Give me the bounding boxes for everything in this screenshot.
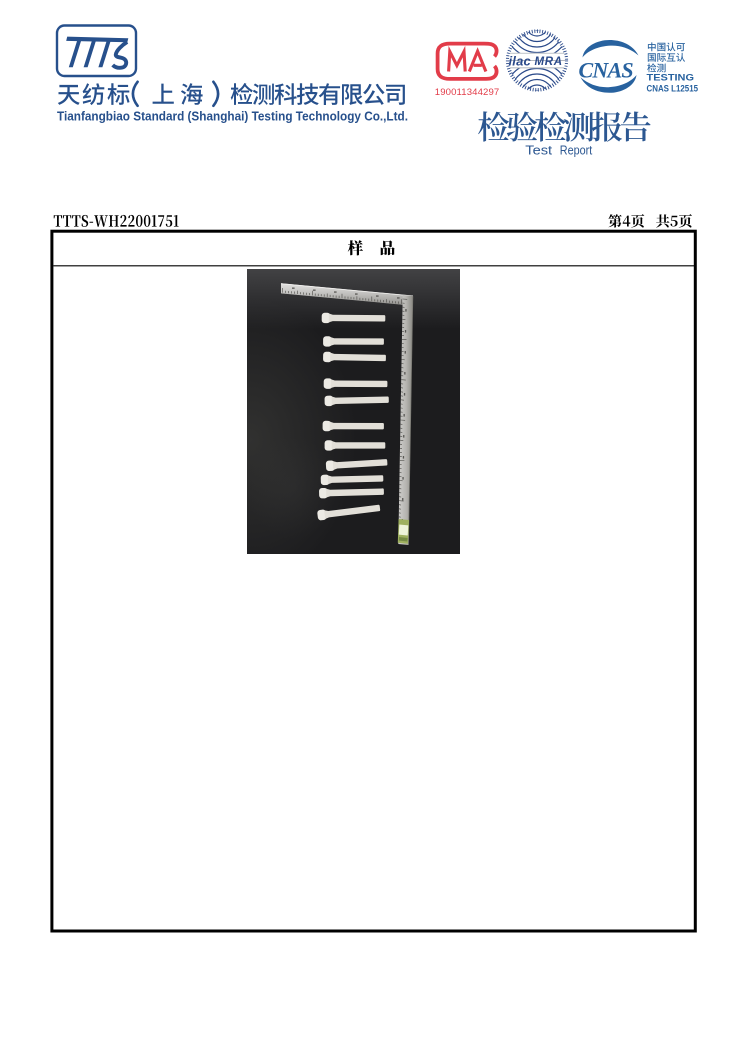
svg-text:Test: Test <box>525 142 552 157</box>
svg-text:Report: Report <box>560 142 593 157</box>
svg-text:CNAS L12515: CNAS L12515 <box>647 84 699 95</box>
svg-text:CNAS: CNAS <box>579 58 634 83</box>
svg-text:MRA: MRA <box>535 56 563 68</box>
svg-text:Tianfangbiao Standard (Shangha: Tianfangbiao Standard (Shanghai) Testing… <box>57 108 408 123</box>
svg-text:190011344297: 190011344297 <box>435 87 500 98</box>
svg-text:TESTING: TESTING <box>647 73 695 84</box>
svg-text:ilac: ilac <box>509 53 532 68</box>
